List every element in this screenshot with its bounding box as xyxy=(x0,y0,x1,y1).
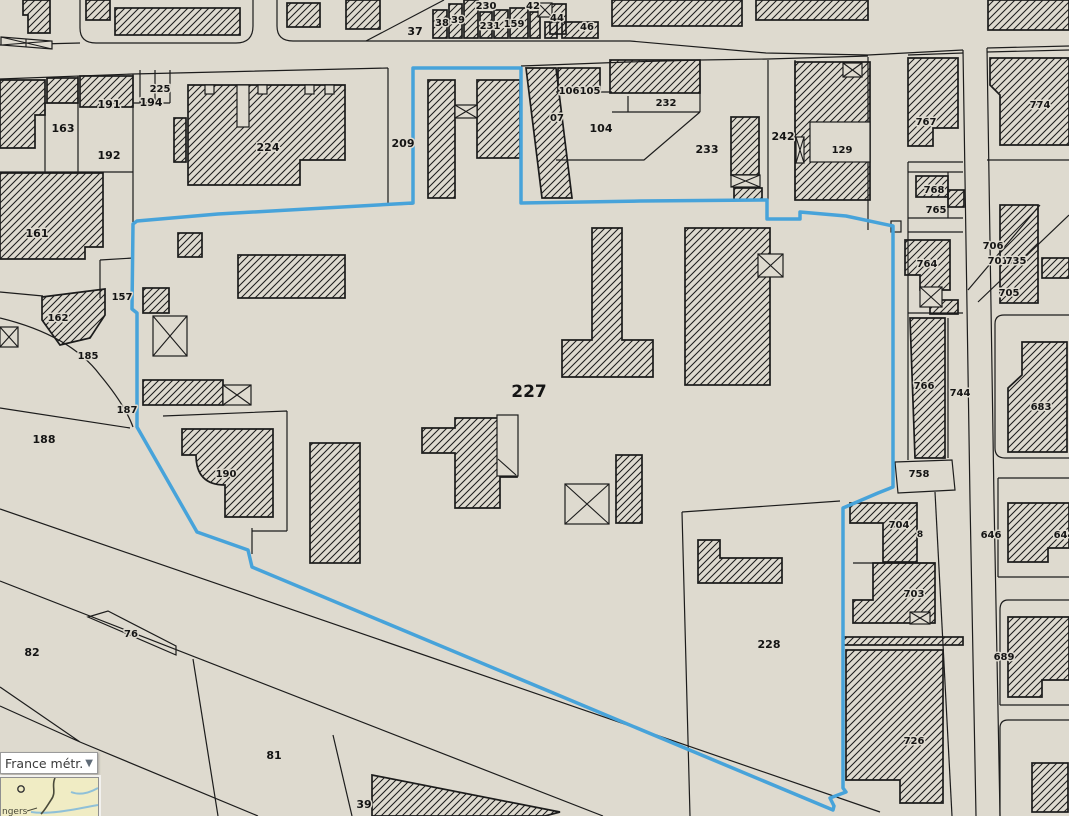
parcel-label: 233 xyxy=(696,143,719,156)
building xyxy=(843,637,963,645)
parcel-label: 76 xyxy=(124,629,138,640)
building xyxy=(143,288,169,313)
parcel-label: 764 xyxy=(917,259,938,270)
crossed-structure xyxy=(843,63,862,77)
building xyxy=(178,233,202,257)
parcel-label: 161 xyxy=(26,227,49,240)
cadastre-map-canvas[interactable]: 37 38 39 230 231 159 42 44 46 163 191 19… xyxy=(0,0,1069,816)
parcel-label: 191 xyxy=(98,98,121,111)
parcel-label: 39 xyxy=(451,15,465,26)
parcel-label: 230 xyxy=(476,1,497,12)
parcel-label: 190 xyxy=(216,469,237,480)
parcel-label: 774 xyxy=(1030,100,1051,111)
overview-minimap[interactable]: ngers xyxy=(0,777,99,816)
parcel-label: 744 xyxy=(950,388,971,399)
crossed-structure xyxy=(910,612,930,624)
parcel-label: 162 xyxy=(48,313,69,324)
building xyxy=(685,228,770,385)
parcel-label: 231 xyxy=(480,21,501,32)
region-dropdown-value: France métr... xyxy=(1,756,83,771)
parcel-label: 106 xyxy=(559,86,580,97)
parcel-label: 44 xyxy=(550,13,564,24)
building xyxy=(731,117,759,175)
parcel-label: 228 xyxy=(758,638,781,651)
parcel-label: 159 xyxy=(504,19,525,30)
building xyxy=(428,80,455,198)
crossed-structure xyxy=(731,175,760,187)
crossed-structure xyxy=(565,484,609,524)
parcel-label: 232 xyxy=(656,98,677,109)
building xyxy=(23,0,50,33)
parcel-label: 209 xyxy=(392,137,415,150)
crossed-structure xyxy=(1,37,52,49)
parcel-label: 188 xyxy=(33,433,56,446)
parcel-label: 157 xyxy=(112,292,133,303)
building xyxy=(1042,258,1069,278)
building xyxy=(562,228,653,377)
crossed-structure xyxy=(153,316,187,356)
building xyxy=(86,0,110,20)
parcel-label: 726 xyxy=(904,736,925,747)
parcel-label: 706 xyxy=(983,241,1004,252)
parcel-label: 224 xyxy=(257,141,280,154)
building xyxy=(143,380,223,405)
parcel-label: 735 xyxy=(1006,256,1027,267)
parcel-label: 38 xyxy=(435,18,449,29)
parcel-label: 8 xyxy=(917,530,923,540)
building xyxy=(372,775,560,816)
crossed-structure xyxy=(796,137,804,163)
building xyxy=(1008,342,1067,452)
parcel-label: 644 xyxy=(1054,530,1069,541)
parcel-label: 42 xyxy=(526,1,540,12)
crossed-structure xyxy=(455,105,477,118)
building xyxy=(698,540,782,583)
building xyxy=(988,0,1069,30)
parcel-label: 37 xyxy=(407,25,422,38)
parcel-label: 768 xyxy=(924,185,945,196)
building xyxy=(545,22,557,38)
building xyxy=(47,78,78,103)
building xyxy=(310,443,360,563)
building xyxy=(1008,617,1069,697)
parcel-label: 39 xyxy=(356,798,371,811)
parcel-label: 104 xyxy=(590,122,613,135)
parcel-label: 225 xyxy=(150,84,171,95)
building xyxy=(846,650,943,803)
parcel-label: 689 xyxy=(994,652,1015,663)
building xyxy=(188,85,345,185)
parcel-label: 82 xyxy=(24,646,39,659)
parcel-label: 767 xyxy=(916,117,937,128)
building xyxy=(756,0,868,20)
parcel-label: 703 xyxy=(904,589,925,600)
parcel-label: 187 xyxy=(117,405,138,416)
minimap-place-label: ngers xyxy=(2,808,27,816)
selected-parcel-label: 227 xyxy=(511,382,547,402)
building xyxy=(287,3,320,27)
parcel-label: 81 xyxy=(266,749,281,762)
building xyxy=(477,80,520,158)
building xyxy=(734,188,762,200)
parcel-label: 194 xyxy=(140,96,163,109)
building xyxy=(616,455,642,523)
building xyxy=(115,8,240,35)
building xyxy=(1032,763,1068,812)
parcel-label: 646 xyxy=(981,530,1002,541)
crossed-structure xyxy=(223,385,251,405)
parcel-label: 192 xyxy=(98,149,121,162)
parcel-label: 163 xyxy=(52,122,75,135)
crossed-structure xyxy=(0,327,18,347)
building xyxy=(346,0,380,29)
parcel-label: 765 xyxy=(926,205,947,216)
parcel-label: 242 xyxy=(772,130,795,143)
parcel-label: 07 xyxy=(550,113,564,124)
building xyxy=(612,0,742,26)
parcel-label: 129 xyxy=(832,145,853,156)
building xyxy=(0,80,45,148)
building xyxy=(908,58,958,146)
parcel-label: 704 xyxy=(889,520,910,531)
building xyxy=(238,255,345,298)
dropdown-arrow-icon: ▼ xyxy=(83,758,97,769)
building xyxy=(0,173,103,259)
building xyxy=(174,118,186,162)
parcel-label: 46 xyxy=(580,22,594,33)
building xyxy=(610,60,700,93)
parcel-label: 766 xyxy=(914,381,935,392)
parcel-label: 758 xyxy=(909,469,930,480)
parcel-label: 705 xyxy=(999,288,1020,299)
building xyxy=(850,503,917,562)
building xyxy=(948,190,964,207)
parcel-label: 683 xyxy=(1031,402,1052,413)
crossed-structure xyxy=(920,287,942,307)
crossed-structure xyxy=(758,254,783,277)
region-dropdown[interactable]: France métr... ▼ xyxy=(0,752,98,774)
parcel-label: 185 xyxy=(78,351,99,362)
parcel-label: 105 xyxy=(580,86,601,97)
cadastre-app: 37 38 39 230 231 159 42 44 46 163 191 19… xyxy=(0,0,1069,816)
